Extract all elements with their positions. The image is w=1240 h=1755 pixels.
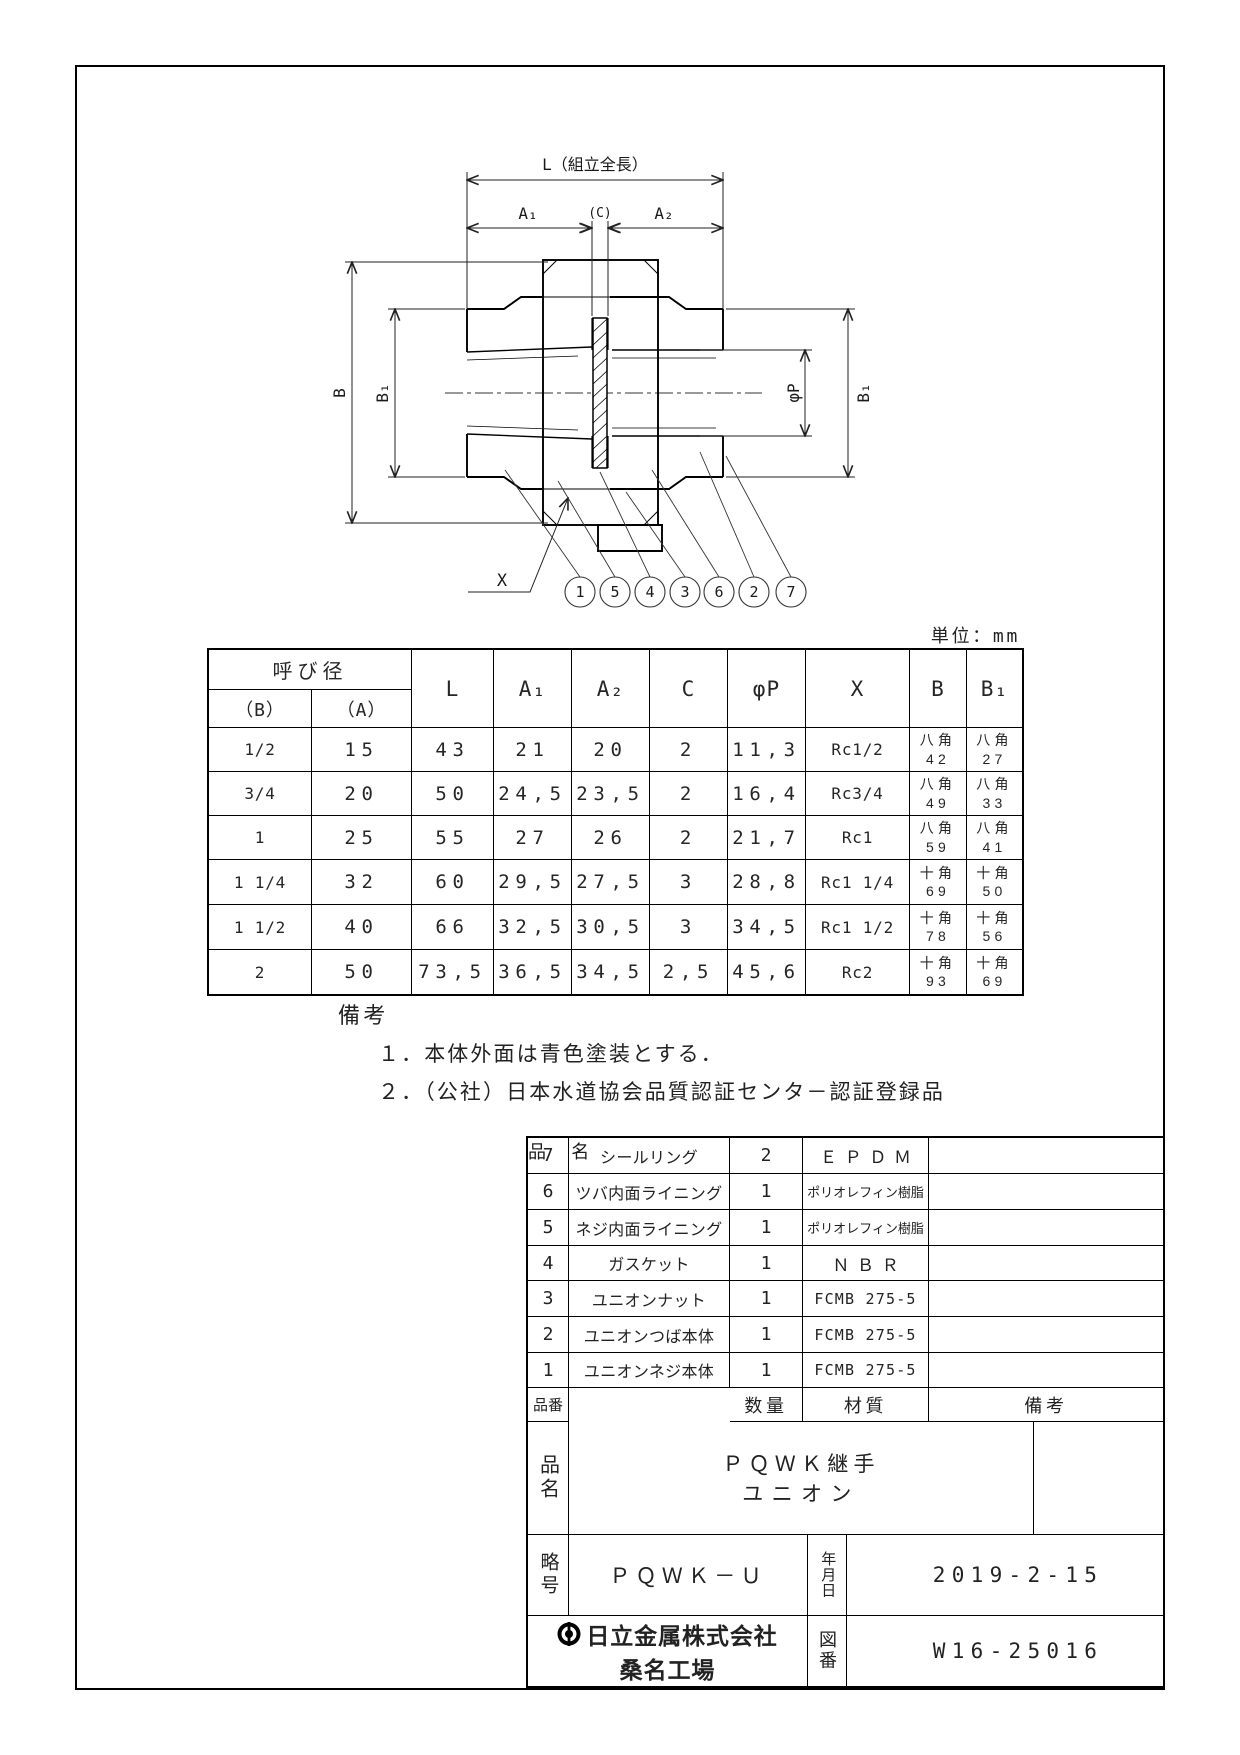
col-header-phi-p: φP — [728, 650, 806, 728]
dim-cell: 十角 69 — [967, 950, 1022, 994]
remark-item: １．本体外面は青色塗装とする． — [378, 1038, 945, 1068]
dim-cell: Rc2 — [806, 950, 910, 994]
balloon-4: 4 — [645, 583, 654, 601]
dim-cell: 20 — [572, 728, 650, 772]
parts-header-no: 品番 — [528, 1388, 569, 1422]
code-label: 略号 — [528, 1535, 569, 1616]
dim-cell: 1 — [209, 816, 312, 860]
dim-cell: 21 — [494, 728, 572, 772]
remarks-title: 備考 — [338, 998, 945, 1030]
product-name-remarks-cell — [1034, 1422, 1163, 1535]
dim-cell: 2,5 — [650, 950, 728, 994]
dim-cell: 十角 69 — [910, 860, 967, 905]
dim-cell: Rc1/2 — [806, 728, 910, 772]
dim-cell: 八角 41 — [967, 816, 1022, 860]
dim-cell: 24,5 — [494, 772, 572, 816]
dim-cell: 八角 33 — [967, 772, 1022, 816]
dim-label-b: B — [330, 388, 349, 398]
dim-cell: Rc1 1/2 — [806, 905, 910, 950]
drawing-number-value: W16-25016 — [847, 1616, 1163, 1686]
balloon-6: 6 — [714, 583, 723, 601]
parts-header-material: 材質 — [803, 1388, 929, 1422]
part-material: ポリオレフィン樹脂 — [803, 1210, 929, 1246]
product-name-cell: ＰＱＷＫ継手 ユニオン — [569, 1422, 1034, 1535]
part-material: FCMB 275-5 — [803, 1281, 929, 1317]
part-material: FCMB 275-5 — [803, 1317, 929, 1353]
dim-cell: 21,7 — [728, 816, 806, 860]
col-header-a2: A₂ — [572, 650, 650, 728]
part-no: 6 — [528, 1174, 569, 1210]
remarks-block: 備考 １．本体外面は青色塗装とする． ２．（公社）日本水道協会品質認証センタ－認… — [338, 998, 945, 1106]
flange-body-outline — [598, 297, 723, 551]
part-name: シールリング — [569, 1138, 730, 1174]
part-material: FCMB 275-5 — [803, 1353, 929, 1388]
part-qty: 1 — [730, 1317, 803, 1353]
date-value: 2019-2-15 — [847, 1535, 1163, 1616]
part-qty: 2 — [730, 1138, 803, 1174]
balloon-1: 1 — [575, 583, 584, 601]
col-header-a: （A） — [312, 690, 412, 728]
dim-cell: 32 — [312, 860, 412, 905]
union-fitting-section-drawing: L（組立全長） A₁ (C) A₂ B B₁ φP B₁ X — [320, 130, 980, 610]
col-header-nominal: 呼び径 — [209, 650, 412, 690]
dim-cell: 十角 78 — [910, 905, 967, 950]
part-remarks-cell — [929, 1174, 1163, 1210]
dimension-table: 呼び径 L A₁ A₂ C φP X B B₁ （B） （A） 1/2 15 4… — [207, 648, 1024, 996]
col-header-b: （B） — [209, 690, 312, 728]
part-qty: 1 — [730, 1353, 803, 1388]
product-name-line2: ユニオン — [742, 1478, 860, 1508]
dim-cell: 3 — [650, 860, 728, 905]
parts-header-qty: 数量 — [730, 1388, 803, 1422]
part-name: ツバ内面ライニング — [569, 1174, 730, 1210]
dim-cell: 45,6 — [728, 950, 806, 994]
dim-cell: 23,5 — [572, 772, 650, 816]
dim-cell: 34,5 — [572, 950, 650, 994]
dim-cell: Rc1 1/4 — [806, 860, 910, 905]
dim-cell: 1/2 — [209, 728, 312, 772]
dim-cell: 20 — [312, 772, 412, 816]
part-qty: 1 — [730, 1174, 803, 1210]
part-remarks-cell — [929, 1138, 1163, 1174]
code-value: ＰＱＷＫ－Ｕ — [569, 1535, 808, 1616]
part-no: 1 — [528, 1353, 569, 1388]
drawing-number-label: 図番 — [808, 1616, 847, 1686]
dim-label-b1-right: B₁ — [854, 383, 873, 402]
dim-cell: 50 — [412, 772, 494, 816]
balloon-7: 7 — [786, 583, 795, 601]
dim-cell: Rc1 — [806, 816, 910, 860]
dim-cell: 55 — [412, 816, 494, 860]
dim-label-x: X — [497, 571, 508, 591]
col-header-b1-flats: B₁ — [967, 650, 1022, 728]
part-qty: 1 — [730, 1210, 803, 1246]
part-remarks-cell — [929, 1210, 1163, 1246]
dim-cell: 66 — [412, 905, 494, 950]
balloon-2: 2 — [749, 583, 758, 601]
part-name: ガスケット — [569, 1246, 730, 1281]
dim-cell: 11,3 — [728, 728, 806, 772]
part-material: ＥＰＤＭ — [803, 1138, 929, 1174]
dim-cell: 八角 27 — [967, 728, 1022, 772]
part-remarks-cell — [929, 1353, 1163, 1388]
dim-cell: 27,5 — [572, 860, 650, 905]
parts-and-title-block: 7 シールリング 2 ＥＰＤＭ 6 ツバ内面ライニング 1 ポリオレフィン樹脂 … — [526, 1136, 1165, 1688]
part-remarks-cell — [929, 1317, 1163, 1353]
dim-cell: Rc3/4 — [806, 772, 910, 816]
part-name: ネジ内面ライニング — [569, 1210, 730, 1246]
part-no: 7 — [528, 1138, 569, 1174]
dim-cell: 28,8 — [728, 860, 806, 905]
dim-cell: 1 1/4 — [209, 860, 312, 905]
dim-cell: 2 — [650, 816, 728, 860]
remark-item: ２．（公社）日本水道協会品質認証センタ－認証登録品 — [378, 1076, 945, 1106]
dim-cell: 八角 59 — [910, 816, 967, 860]
dim-cell: 3 — [650, 905, 728, 950]
company-name: 日立金属株式会社 — [586, 1617, 777, 1651]
dim-cell: 43 — [412, 728, 494, 772]
dim-cell: 25 — [312, 816, 412, 860]
part-name: ユニオンつば本体 — [569, 1317, 730, 1353]
dim-cell: 3/4 — [209, 772, 312, 816]
part-remarks-cell — [929, 1281, 1163, 1317]
dim-cell: 30,5 — [572, 905, 650, 950]
dim-cell: 60 — [412, 860, 494, 905]
dim-cell: 15 — [312, 728, 412, 772]
dim-cell: 2 — [650, 772, 728, 816]
dim-cell: 26 — [572, 816, 650, 860]
dim-label-b1-left: B₁ — [373, 383, 392, 402]
gasket-section — [593, 318, 607, 468]
balloon-leader-lines — [505, 452, 791, 577]
part-name: ユニオンナット — [569, 1281, 730, 1317]
part-material: ＮＢＲ — [803, 1246, 929, 1281]
company-logo — [557, 1622, 581, 1646]
dim-cell: 十角 56 — [967, 905, 1022, 950]
part-material: ポリオレフィン樹脂 — [803, 1174, 929, 1210]
part-qty: 1 — [730, 1281, 803, 1317]
product-name-line1: ＰＱＷＫ継手 — [722, 1448, 880, 1478]
dim-cell: 32,5 — [494, 905, 572, 950]
balloon-5: 5 — [610, 583, 619, 601]
part-remarks-cell — [929, 1246, 1163, 1281]
balloon-3: 3 — [680, 583, 689, 601]
unit-note: 単位：mm — [800, 622, 1020, 648]
part-no: 3 — [528, 1281, 569, 1317]
part-balloons: 1 5 4 3 6 2 7 — [565, 577, 806, 607]
parts-header-remarks: 備考 — [929, 1388, 1163, 1422]
dim-label-a1: A₁ — [518, 204, 537, 223]
col-header-a1: A₁ — [494, 650, 572, 728]
col-header-b-flats: B — [910, 650, 967, 728]
col-header-l: L — [412, 650, 494, 728]
dim-cell: 36,5 — [494, 950, 572, 994]
dim-cell: 1 1/2 — [209, 905, 312, 950]
product-name-label: 品名 — [528, 1422, 569, 1535]
dim-cell: 八角 49 — [910, 772, 967, 816]
dim-cell: 2 — [209, 950, 312, 994]
dim-cell: 2 — [650, 728, 728, 772]
dim-cell: 十角 50 — [967, 860, 1022, 905]
dim-cell: 34,5 — [728, 905, 806, 950]
dim-cell: 十角 93 — [910, 950, 967, 994]
part-no: 2 — [528, 1317, 569, 1353]
part-name: ユニオンネジ本体 — [569, 1353, 730, 1388]
dim-cell: 29,5 — [494, 860, 572, 905]
dim-label-overall-length: L（組立全長） — [542, 155, 648, 174]
dim-cell: 40 — [312, 905, 412, 950]
dim-label-phi-p: φP — [784, 383, 803, 402]
factory-name: 桑名工場 — [620, 1651, 716, 1685]
dim-cell: 八角 42 — [910, 728, 967, 772]
dim-cell: 73,5 — [412, 950, 494, 994]
date-label: 年月日 — [808, 1535, 847, 1616]
drawing-sheet: L（組立全長） A₁ (C) A₂ B B₁ φP B₁ X — [0, 0, 1240, 1755]
col-header-c: C — [650, 650, 728, 728]
dim-cell: 16,4 — [728, 772, 806, 816]
company-cell: 日立金属株式会社 桑名工場 — [528, 1616, 808, 1686]
col-header-x: X — [806, 650, 910, 728]
dim-label-c: (C) — [588, 206, 611, 221]
dim-label-a2: A₂ — [654, 204, 673, 223]
dim-cell: 50 — [312, 950, 412, 994]
part-no: 5 — [528, 1210, 569, 1246]
part-no: 4 — [528, 1246, 569, 1281]
part-qty: 1 — [730, 1246, 803, 1281]
dim-cell: 27 — [494, 816, 572, 860]
